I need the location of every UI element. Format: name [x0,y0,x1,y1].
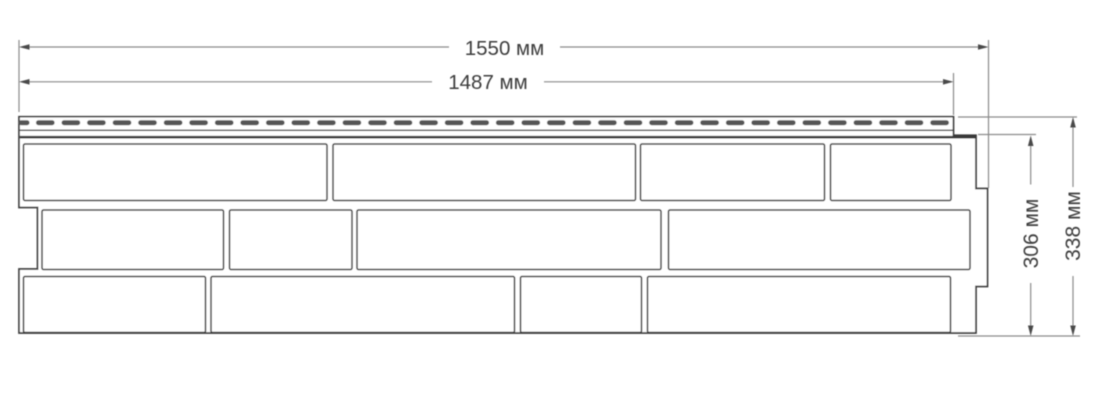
svg-text:338 мм: 338 мм [1062,191,1085,261]
svg-text:306 мм: 306 мм [1020,199,1043,269]
svg-text:1487 мм: 1487 мм [448,71,528,94]
svg-text:1550 мм: 1550 мм [465,37,545,60]
